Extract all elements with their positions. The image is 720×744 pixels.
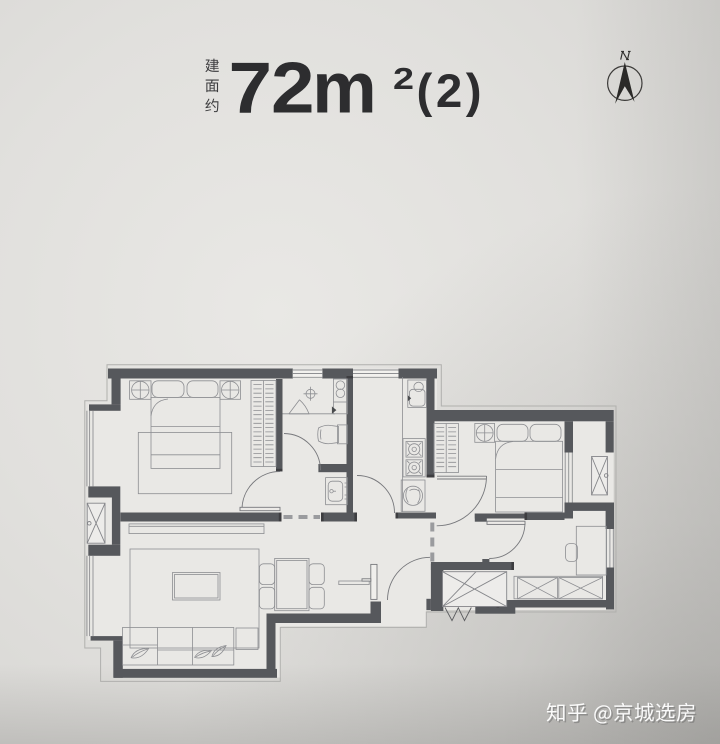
svg-text:m: m xyxy=(312,48,376,129)
svg-text:72: 72 xyxy=(229,48,314,129)
svg-text:2: 2 xyxy=(393,61,414,96)
svg-text:(2): (2) xyxy=(417,65,486,118)
